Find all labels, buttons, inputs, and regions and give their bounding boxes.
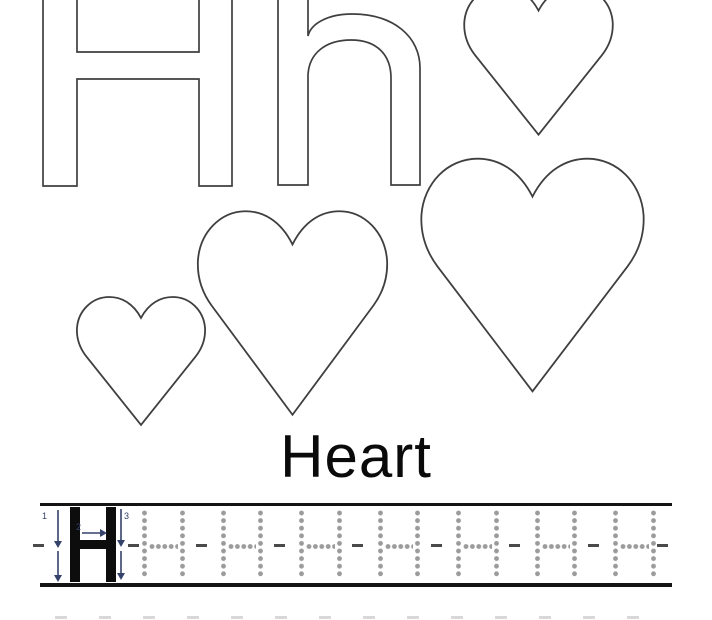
cutoff-next-row-mark — [231, 616, 243, 619]
cutoff-next-row-mark — [539, 616, 551, 619]
midline-dash — [657, 544, 668, 547]
cutoff-next-row-mark — [363, 616, 375, 619]
stroke2-arrowhead — [100, 529, 107, 537]
dotted-letter-crossbar — [385, 544, 414, 549]
dotted-letter-stem-left — [378, 510, 383, 578]
dotted-letter-stem-left — [142, 510, 147, 578]
midline-dash — [33, 544, 44, 547]
stroke1-arrowhead-upper — [54, 541, 62, 548]
midline-dash — [196, 544, 207, 547]
cutoff-next-row-mark — [275, 616, 287, 619]
cutoff-next-row-mark — [627, 616, 639, 619]
midline-dash — [352, 544, 363, 547]
dotted-letter-stem-right — [415, 510, 420, 578]
heart-medium — [198, 211, 387, 415]
dotted-letter-crossbar — [463, 544, 492, 549]
stroke1-arrowhead-lower — [54, 575, 62, 582]
cutoff-next-row-mark — [99, 616, 111, 619]
dotted-letter-crossbar — [620, 544, 649, 549]
dotted-letter-stem-left — [535, 510, 540, 578]
stroke3-arrowhead-lower — [117, 573, 125, 580]
cutoff-next-row-mark — [495, 616, 507, 619]
dotted-letter-stem-right — [180, 510, 185, 578]
cutoff-next-row-mark — [143, 616, 155, 619]
cutoff-next-row-mark — [319, 616, 331, 619]
dotted-letter-stem-right — [494, 510, 499, 578]
stroke-number-1: 1 — [42, 511, 47, 521]
midline-dash — [274, 544, 285, 547]
dotted-letter-crossbar — [228, 544, 257, 549]
dotted-letter-stem-right — [651, 510, 656, 578]
cutoff-next-row-mark — [187, 616, 199, 619]
cutoff-next-row-mark — [407, 616, 419, 619]
stroke-number-2: 2 — [76, 522, 81, 532]
dotted-letter-stem-left — [221, 510, 226, 578]
dotted-letter-crossbar — [149, 544, 178, 549]
stroke3-arrowhead-upper — [117, 540, 125, 547]
stroke-number-3: 3 — [124, 511, 129, 521]
hearts-group — [77, 0, 644, 425]
dotted-letter-stem-right — [572, 510, 577, 578]
dotted-letter-stem-right — [258, 510, 263, 578]
midline-dash — [588, 544, 599, 547]
worksheet-page: Heart 1 2 3 — [0, 0, 712, 620]
heart-small — [77, 297, 205, 425]
trace-row: 1 2 3 — [40, 503, 672, 587]
cutoff-next-row-mark — [583, 616, 595, 619]
midline-dash — [431, 544, 442, 547]
cutoff-next-row-mark — [451, 616, 463, 619]
outline-letter-uppercase-H — [43, 0, 232, 186]
cutoff-next-row-mark — [55, 616, 67, 619]
midline-dash — [509, 544, 520, 547]
heart-large — [421, 159, 643, 392]
dotted-letter-stem-left — [299, 510, 304, 578]
dotted-letter-stem-left — [613, 510, 618, 578]
midline-dash — [128, 544, 139, 547]
dotted-letter-crossbar — [306, 544, 335, 549]
dotted-letter-stem-left — [456, 510, 461, 578]
word-label: Heart — [0, 427, 712, 487]
heart-top-right — [464, 0, 613, 135]
dotted-letter-stem-right — [337, 510, 342, 578]
dotted-letter-crossbar — [542, 544, 571, 549]
outline-letter-lowercase-h — [278, 0, 420, 185]
